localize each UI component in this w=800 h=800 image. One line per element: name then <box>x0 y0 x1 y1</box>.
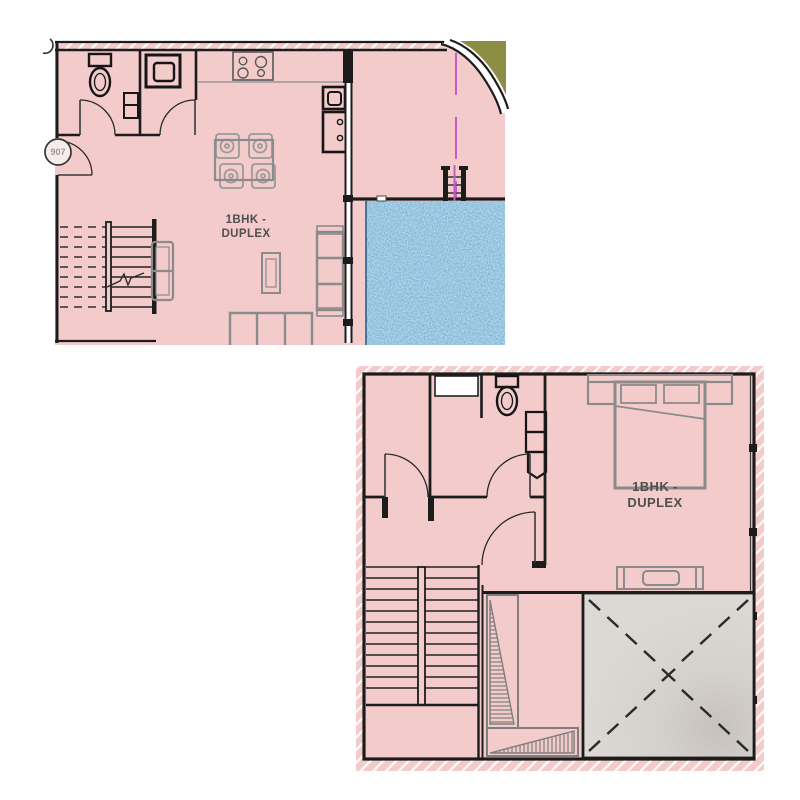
bottom-wall-poche <box>356 760 762 771</box>
door-jamb <box>382 497 388 518</box>
cropped-badge-icon <box>43 39 53 53</box>
svg-text:1BHK -: 1BHK - <box>226 214 267 226</box>
svg-text:DUPLEX: DUPLEX <box>221 228 270 240</box>
void-area <box>583 593 754 758</box>
pool-ladder-icon <box>441 165 468 201</box>
svg-text:1BHK -: 1BHK - <box>632 479 678 494</box>
terrace-dividing-wall <box>343 49 353 343</box>
floor-plan-canvas: 907 <box>0 0 800 800</box>
right-wall-poche <box>756 366 764 770</box>
unit-label-upper: 1BHK - DUPLEX <box>627 479 682 510</box>
door-jamb <box>532 561 546 568</box>
door-jamb <box>428 497 434 521</box>
unit-number-text: 907 <box>50 147 65 157</box>
shower-tray <box>435 376 478 396</box>
svg-text:DUPLEX: DUPLEX <box>627 495 682 510</box>
unit-number-badge: 907 <box>45 139 71 165</box>
lower-level-plan: 907 <box>40 35 510 350</box>
pool-edge-notch <box>377 196 386 201</box>
upper-level-plan: 1BHK - DUPLEX <box>350 360 770 780</box>
swimming-pool <box>366 201 505 345</box>
